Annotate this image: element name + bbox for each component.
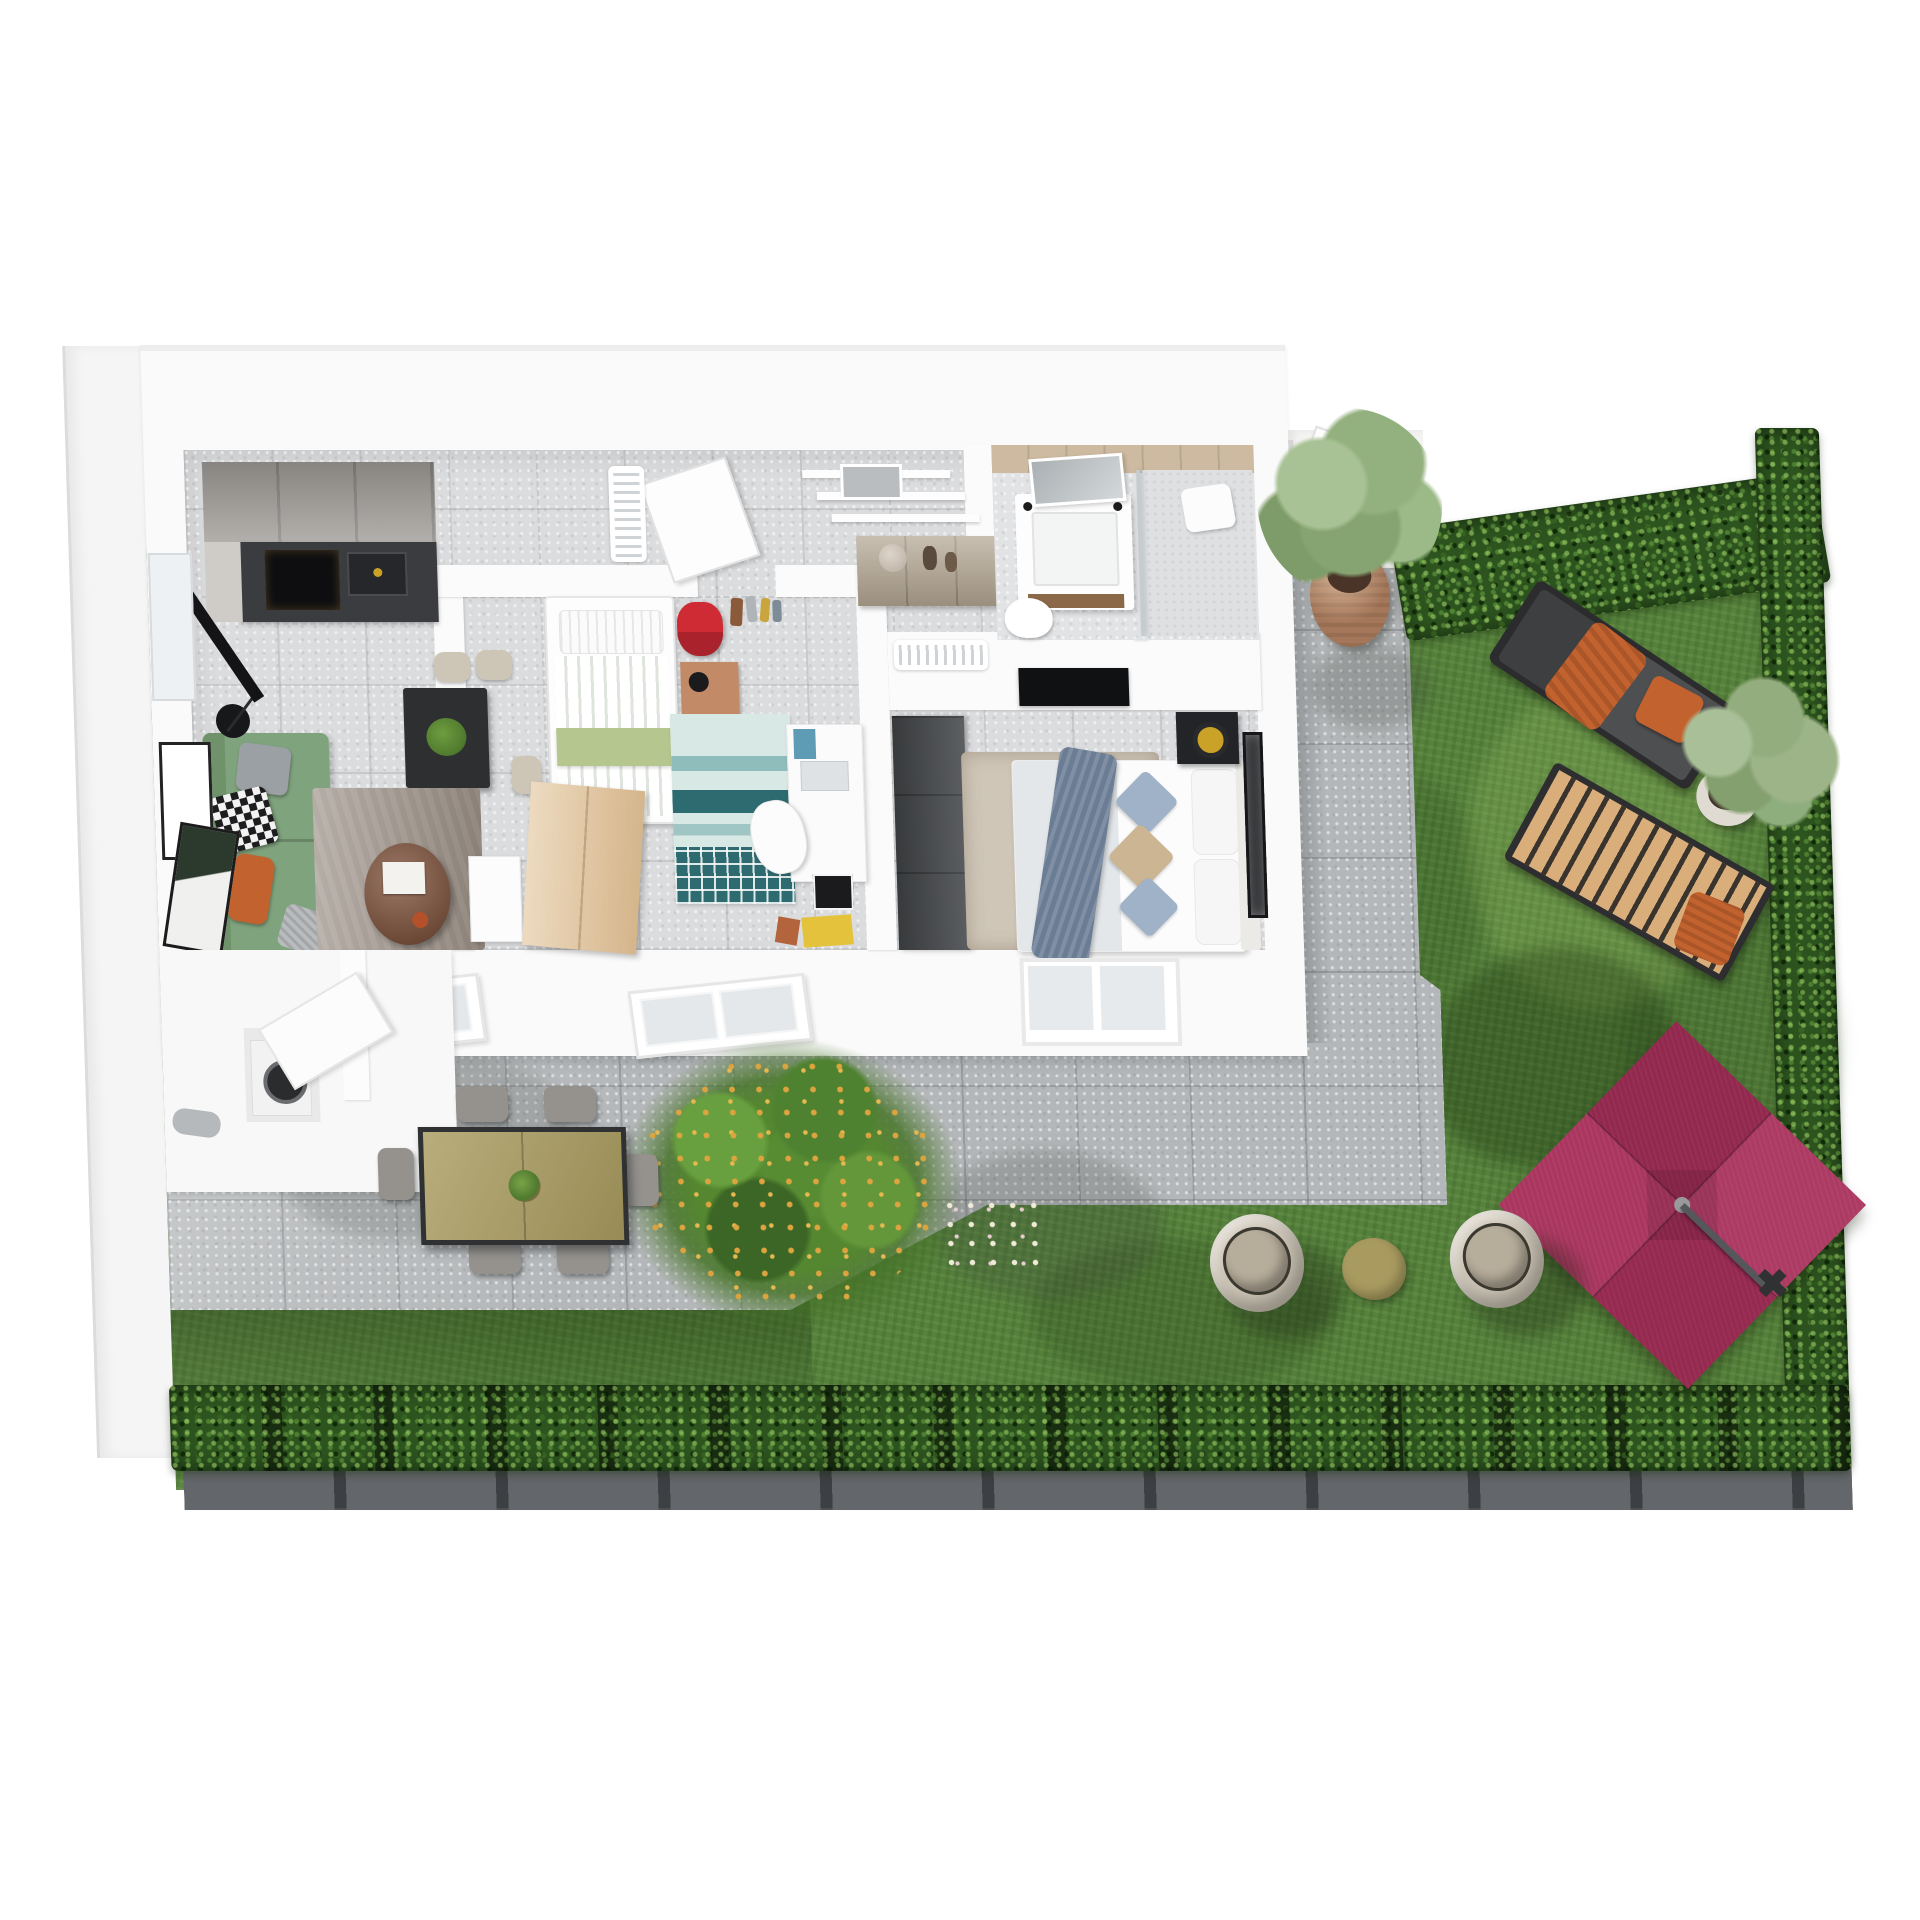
floorplan-scene — [0, 0, 1920, 1920]
white-pillow — [1193, 859, 1242, 945]
floorplan-canvas — [0, 0, 1920, 1920]
yellow-blossoms — [636, 1055, 944, 1310]
window-pane — [1028, 966, 1094, 1030]
hall-bottle — [945, 552, 958, 572]
vanity — [1015, 494, 1135, 610]
khaki-side-table — [1341, 1238, 1407, 1300]
pod-seat — [1465, 1226, 1529, 1288]
hall-bottle — [922, 546, 937, 570]
kids-green-blanket — [556, 728, 671, 766]
kitchen-faucet — [373, 568, 382, 577]
wall-hook-item — [760, 598, 771, 623]
dining-chair — [476, 650, 513, 680]
shower-towel — [1180, 483, 1237, 534]
side-shelf — [468, 856, 523, 942]
window-pane — [640, 992, 720, 1047]
white-flowers — [939, 1196, 1052, 1276]
hall-shelf — [831, 514, 979, 522]
brass-lamp — [1192, 722, 1229, 758]
wall-hook-item — [772, 600, 782, 622]
tv-panel — [1018, 668, 1129, 706]
induction-hob — [265, 550, 341, 610]
master-window — [1019, 958, 1182, 1046]
wall-hook-item — [730, 598, 743, 627]
living-window — [148, 553, 197, 701]
blue-pillow — [1114, 769, 1179, 834]
utility-room — [159, 950, 459, 1192]
outdoor-dining-table — [418, 1127, 630, 1245]
master-bed — [1011, 760, 1247, 952]
vanity-faucet — [1023, 502, 1032, 511]
door-handle-part — [171, 1107, 222, 1139]
toilet — [1004, 598, 1053, 638]
blue-pillow — [1118, 876, 1180, 938]
hedge-bottom — [169, 1385, 1852, 1471]
flowering-bush — [612, 1035, 971, 1335]
outdoor-chair — [377, 1148, 415, 1200]
bath-mirror — [1028, 453, 1126, 507]
centerpiece-plant — [508, 1170, 541, 1202]
white-pillow — [1190, 769, 1239, 855]
dining-chair — [434, 652, 471, 682]
coffee-table-bowl — [412, 912, 429, 928]
dark-wardrobe — [892, 716, 971, 950]
red-backpack — [676, 602, 724, 656]
hall-vase — [878, 544, 907, 572]
ac-vent — [893, 640, 988, 670]
pod-seat — [1225, 1230, 1289, 1292]
kitchen-upper-cabinets — [202, 462, 437, 542]
coffee-table-book — [382, 862, 425, 894]
table-plant — [426, 718, 467, 756]
hall-screen — [840, 464, 903, 500]
kids-lamp — [688, 672, 709, 692]
ac-vent — [608, 466, 647, 562]
kids-pillow — [558, 610, 663, 654]
kitchen-column — [204, 542, 243, 622]
window-pane — [1100, 966, 1166, 1030]
wood-wardrobe — [522, 781, 645, 954]
outdoor-chair — [455, 1086, 508, 1122]
vanity-basin — [1031, 512, 1119, 586]
window-pane — [719, 983, 799, 1038]
desk-laptop — [800, 761, 849, 791]
wood-toy — [775, 916, 800, 945]
desk-blue-box — [793, 729, 816, 759]
poster — [813, 874, 854, 910]
outdoor-chair — [543, 1086, 596, 1122]
wall-bed1-top-a — [432, 565, 698, 597]
vanity-faucet — [1113, 502, 1122, 511]
yellow-box — [801, 914, 854, 947]
